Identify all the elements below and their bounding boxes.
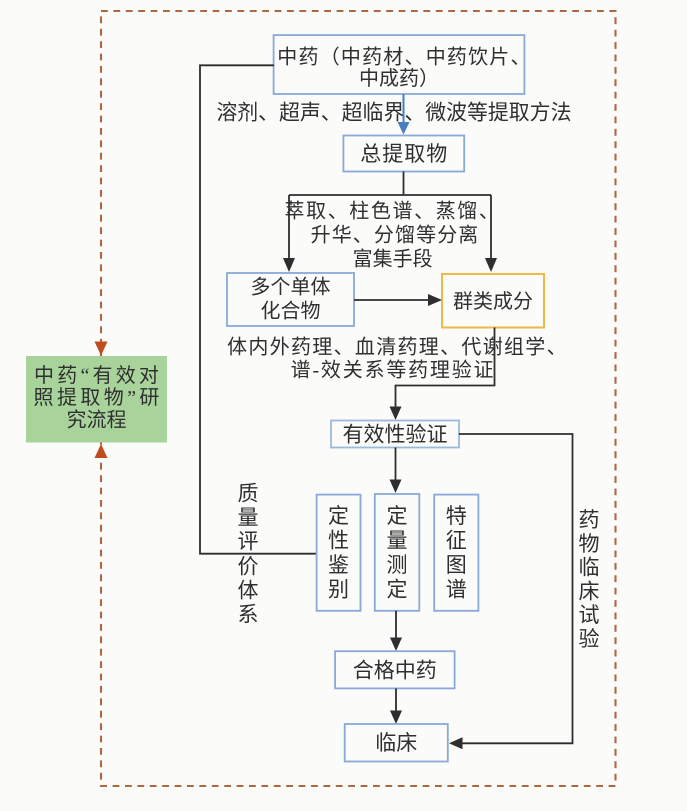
svg-text:别: 别 [328, 578, 349, 602]
svg-text:物: 物 [579, 532, 600, 556]
svg-text:溶剂、超声、超临界、微波等提取方法: 溶剂、超声、超临界、微波等提取方法 [216, 101, 571, 125]
svg-text:究流程: 究流程 [67, 408, 127, 431]
svg-text:评: 评 [238, 529, 259, 553]
svg-text:价: 价 [238, 554, 259, 578]
svg-text:鉴: 鉴 [328, 553, 349, 577]
svg-text:总提取物: 总提取物 [360, 142, 448, 166]
svg-text:照提取物”研: 照提取物”研 [34, 386, 163, 409]
svg-text:性: 性 [328, 529, 349, 553]
svg-text:体内外药理、血清药理、代谢组学、: 体内外药理、血清药理、代谢组学、 [227, 335, 568, 358]
svg-text:特: 特 [446, 504, 467, 528]
svg-text:谱-效关系等药理验证: 谱-效关系等药理验证 [291, 359, 496, 382]
svg-text:质: 质 [238, 481, 259, 505]
svg-text:量: 量 [238, 505, 259, 529]
svg-text:定: 定 [328, 504, 349, 528]
svg-text:系: 系 [238, 602, 259, 626]
svg-text:中成药）: 中成药） [359, 67, 439, 90]
svg-text:验: 验 [579, 627, 600, 651]
svg-text:临床: 临床 [375, 731, 417, 755]
svg-text:群类成分: 群类成分 [453, 290, 533, 313]
svg-text:量: 量 [387, 529, 408, 553]
svg-text:测: 测 [387, 553, 408, 577]
svg-text:临: 临 [579, 556, 600, 580]
svg-text:床: 床 [579, 579, 600, 603]
svg-text:图: 图 [446, 553, 467, 577]
svg-text:谱: 谱 [446, 578, 467, 602]
svg-text:化合物: 化合物 [261, 300, 321, 323]
svg-text:多个单体: 多个单体 [251, 276, 331, 299]
svg-text:升华、分馏等分离: 升华、分馏等分离 [311, 223, 480, 246]
svg-text:体: 体 [238, 578, 259, 602]
svg-text:中药“有效对: 中药“有效对 [34, 364, 162, 387]
svg-text:富集手段: 富集手段 [353, 247, 433, 270]
svg-text:有效性验证: 有效性验证 [343, 423, 448, 447]
svg-text:定: 定 [387, 578, 408, 602]
svg-text:试: 试 [579, 603, 600, 627]
svg-text:药: 药 [579, 508, 600, 532]
svg-text:征: 征 [446, 529, 467, 553]
svg-text:合格中药: 合格中药 [353, 658, 437, 682]
svg-text:定: 定 [387, 504, 408, 528]
svg-text:中药（中药材、中药饮片、: 中药（中药材、中药饮片、 [277, 46, 531, 69]
svg-text:萃取、柱色谱、蒸馏、: 萃取、柱色谱、蒸馏、 [285, 200, 501, 223]
